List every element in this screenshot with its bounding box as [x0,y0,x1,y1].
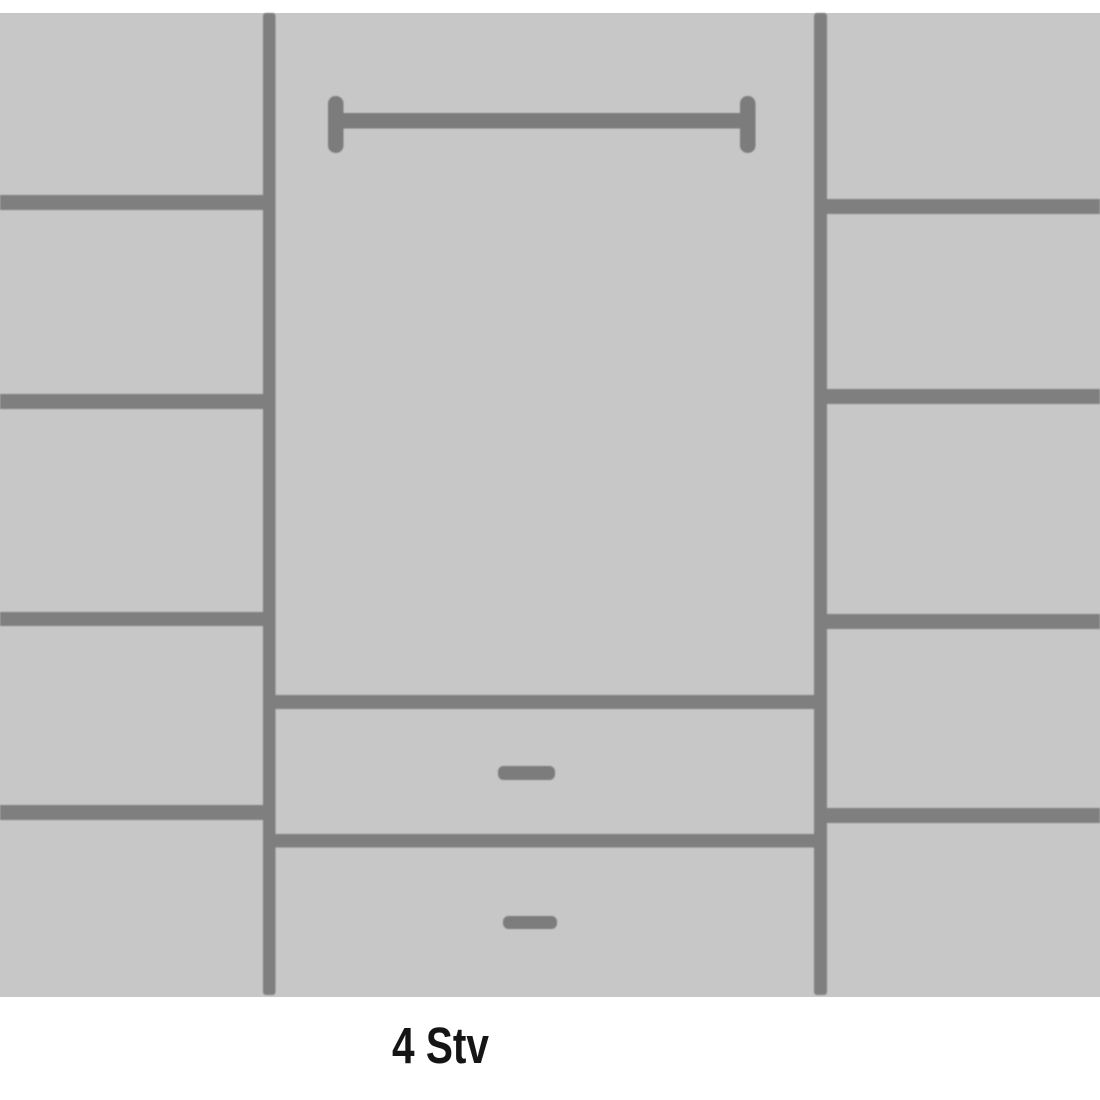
svg-text:4 Stv: 4 Stv [392,1017,489,1074]
